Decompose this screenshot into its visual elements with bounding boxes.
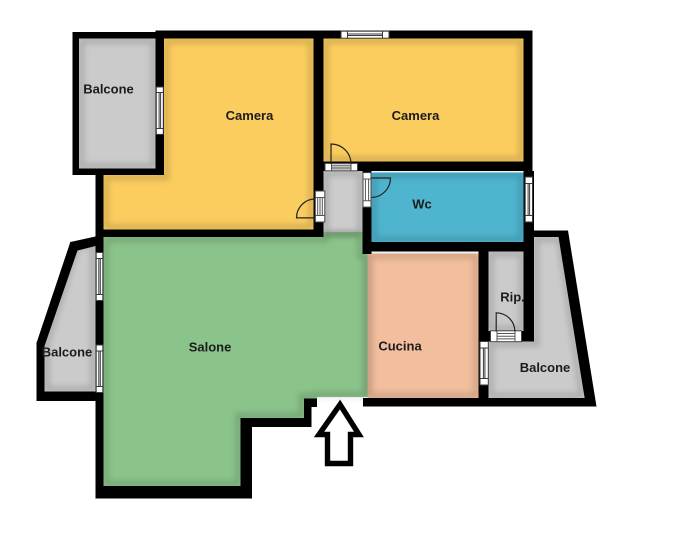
svg-text:Rip.: Rip. [500,290,525,305]
svg-text:Balcone: Balcone [42,345,93,360]
svg-text:Wc: Wc [412,197,432,212]
svg-text:Salone: Salone [189,340,232,355]
svg-text:Balcone: Balcone [520,360,571,375]
svg-text:Camera: Camera [392,108,440,123]
svg-text:Balcone: Balcone [83,82,134,97]
svg-text:Cucina: Cucina [378,339,422,354]
svg-text:Camera: Camera [226,108,274,123]
